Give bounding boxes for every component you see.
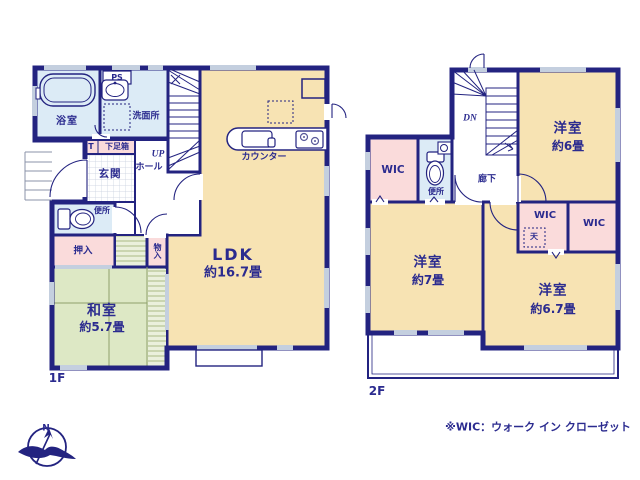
- compass-icon: [18, 428, 76, 466]
- corner-basin-icon: [438, 142, 451, 154]
- label-washitsu-size: 約5.7畳: [79, 321, 124, 333]
- label-entrance: 玄関: [99, 169, 122, 180]
- terrace-step: [196, 350, 262, 366]
- washitsu-edge-strip: [148, 269, 166, 367]
- label-ps: PS: [111, 74, 123, 82]
- label-ldk: LDK: [212, 247, 254, 263]
- compass-needle-wing: [18, 446, 76, 459]
- label-room67-size: 約6.7畳: [530, 303, 575, 315]
- label-up: UP: [152, 150, 165, 160]
- kitchen-counter: [227, 128, 327, 150]
- label-room7-size: 約7畳: [412, 274, 444, 286]
- floor2-plan: [365, 54, 620, 378]
- label-hall-1f: ホール: [135, 164, 162, 173]
- label-washroom: 洗面所: [132, 113, 159, 122]
- step-storage: [115, 235, 147, 267]
- floorplan-graphics: [0, 0, 640, 480]
- label-dn: DN: [463, 114, 477, 124]
- label-room67: 洋室: [539, 284, 568, 298]
- label-room6-size: 約6畳: [552, 140, 584, 152]
- label-floor1: 1F: [49, 372, 66, 384]
- label-wic2: WIC: [534, 211, 556, 221]
- label-bathroom: 浴室: [56, 117, 78, 127]
- label-toilet-2f: 便所: [428, 188, 444, 196]
- label-floor2: 2F: [369, 385, 386, 397]
- porch-steps: [25, 152, 52, 200]
- floorplan-canvas: 浴室 PS 洗面所 T 下足箱 玄関 ホール UP 便所 押入 物入 和室 約5…: [0, 0, 640, 480]
- pantry-box: [302, 79, 325, 98]
- label-counter: カウンター: [241, 154, 286, 163]
- label-toilet-1f: 便所: [94, 207, 110, 215]
- label-shoe-box: 下足箱: [105, 143, 129, 151]
- label-storage: 物入: [153, 243, 161, 259]
- label-ldk-size: 約16.7畳: [204, 267, 262, 280]
- stove-icon: [296, 131, 323, 148]
- label-hall-2f: 廊下: [478, 176, 496, 185]
- compass-north-label: N: [42, 425, 50, 434]
- label-shoe-t: T: [88, 143, 93, 151]
- label-oshiire: 押入: [73, 246, 92, 256]
- label-washitsu: 和室: [87, 304, 117, 318]
- label-ceiling-hatch: 天: [530, 233, 538, 241]
- bathtub-icon: [36, 74, 95, 106]
- label-room7: 洋室: [414, 256, 443, 270]
- label-room6: 洋室: [554, 122, 583, 136]
- label-wic3: WIC: [583, 219, 605, 229]
- floor1-plan: [25, 65, 346, 370]
- toilet-icon-1f: [58, 209, 94, 229]
- label-wic1: WIC: [381, 165, 404, 176]
- wic-footnote: ※WIC：ウォーク イン クローゼット: [445, 422, 631, 433]
